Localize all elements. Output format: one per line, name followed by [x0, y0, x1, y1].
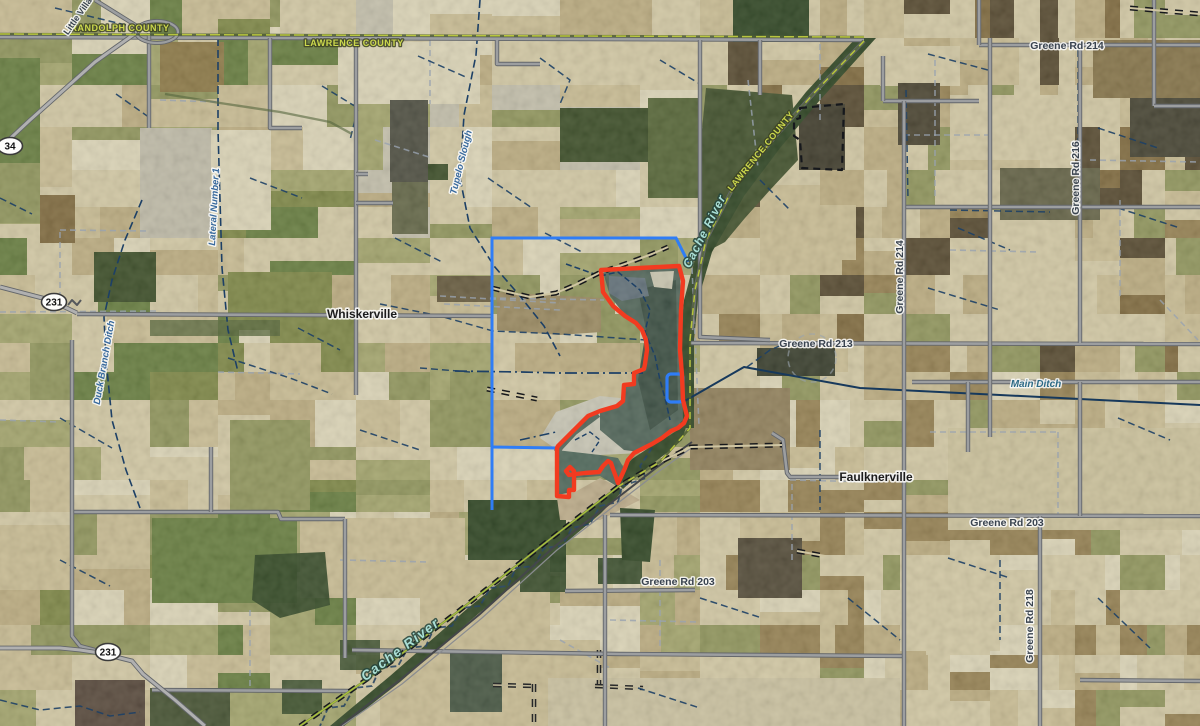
svg-text:Greene Rd 214: Greene Rd 214 — [894, 240, 906, 314]
svg-text:Faulknerville: Faulknerville — [839, 470, 913, 484]
svg-text:Greene Rd 203: Greene Rd 203 — [970, 517, 1044, 529]
svg-text:Greene Rd 213: Greene Rd 213 — [779, 338, 853, 350]
svg-text:231: 231 — [46, 298, 63, 309]
svg-text:RANDOLPH COUNTY: RANDOLPH COUNTY — [71, 23, 170, 33]
svg-text:Greene Rd 203: Greene Rd 203 — [641, 576, 715, 588]
svg-text:34: 34 — [4, 142, 16, 153]
svg-text:231: 231 — [100, 648, 117, 659]
svg-text:Main Ditch: Main Ditch — [1011, 379, 1062, 390]
svg-text:Greene Rd 216: Greene Rd 216 — [1070, 141, 1082, 215]
svg-text:LAWRENCE COUNTY: LAWRENCE COUNTY — [304, 38, 404, 48]
svg-text:Whiskerville: Whiskerville — [327, 307, 397, 321]
svg-text:Greene Rd 214: Greene Rd 214 — [1030, 40, 1104, 52]
svg-text:Greene Rd 218: Greene Rd 218 — [1024, 589, 1036, 663]
